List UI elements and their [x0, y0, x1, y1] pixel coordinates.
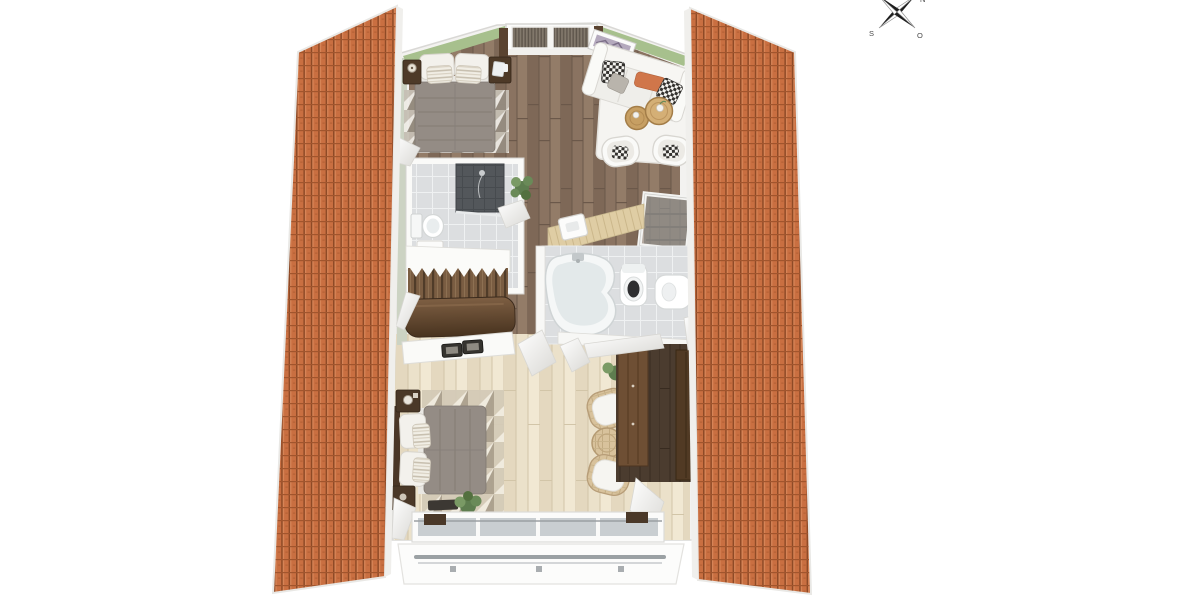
toilet: [620, 264, 647, 306]
nightstand-right: [489, 57, 511, 83]
bedroom2: [392, 390, 504, 522]
balcony-railing: [398, 544, 684, 584]
shower-head: [479, 170, 485, 176]
stair-treads: [408, 268, 508, 300]
bathroom: [536, 246, 692, 350]
compass-rose: N S O W: [868, 0, 925, 40]
balcony-window: [412, 512, 664, 542]
floor-plan: [392, 23, 702, 584]
nightstand-top: [396, 390, 420, 412]
wardrobe-corner: [616, 344, 696, 482]
floorplan-image: N S O W: [0, 0, 1200, 600]
staircase: [405, 246, 516, 337]
compass-label-east: O: [917, 31, 923, 40]
bedroom1-bed: [415, 53, 495, 152]
bedroom1: [403, 53, 511, 153]
glass-railing: [639, 194, 692, 251]
left-roof: [273, 6, 403, 593]
window-jamb-right: [626, 512, 648, 523]
floor-plan-canvas: N S O W: [0, 0, 1200, 600]
compass-label-north: N: [920, 0, 925, 4]
nightstand-left: [403, 60, 421, 84]
table-lamp: [404, 396, 413, 405]
toilet: [411, 214, 444, 238]
bench: [428, 499, 458, 510]
compass-label-south: S: [869, 29, 874, 38]
stair-balustrade: [405, 297, 516, 338]
window-jamb-left: [424, 514, 446, 525]
bidet: [655, 275, 691, 309]
wardrobe: [618, 346, 648, 466]
right-roof: [684, 8, 811, 594]
bathtub: [545, 253, 615, 335]
